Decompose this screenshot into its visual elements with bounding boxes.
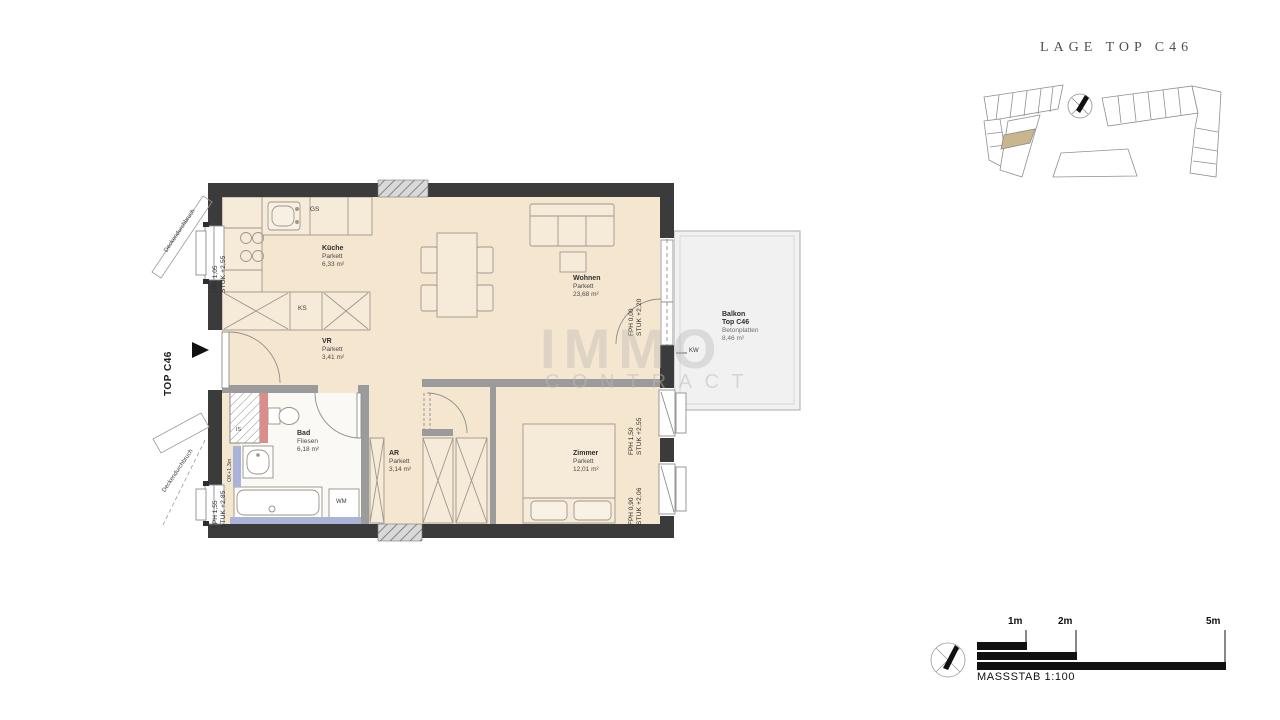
north-compass-icon <box>931 643 965 677</box>
room-label-vr: VR Parkett 3,41 m² <box>322 338 344 362</box>
floor-plan-page: LAGE TOP C46 Küche Parkett 6,33 m² Wohne… <box>0 0 1280 720</box>
floor-plan-drawing <box>0 0 1280 720</box>
label-basin-height: OK+1,3m <box>227 459 233 482</box>
room-label-bad: Bad Fliesen 6,18 m² <box>297 430 319 454</box>
label-washing-machine: WM <box>336 499 347 505</box>
label-dishwasher: GS <box>310 206 319 213</box>
room-label-wohnen: Wohnen Parkett 23,68 m² <box>573 275 600 299</box>
scale-mark-2m: 2m <box>1058 616 1072 627</box>
label-cold-water: KW <box>689 348 699 354</box>
installation-shaft <box>230 386 260 443</box>
room-label-kueche: Küche Parkett 6,33 m² <box>322 245 344 269</box>
site-plan <box>984 85 1221 177</box>
site-compass-icon <box>1068 94 1092 118</box>
room-label-zimmer: Zimmer Parkett 12,01 m² <box>573 450 599 474</box>
bed <box>523 424 615 523</box>
entrance-arrow <box>192 342 209 358</box>
room-label-ar: AR Parkett 3,14 m² <box>389 450 411 474</box>
bathtub <box>234 487 322 518</box>
room-label-balkon: Balkon Top C46 Betonplatten 8,46 m² <box>722 311 759 343</box>
toilet <box>268 408 299 425</box>
window-label-left-top: FPH 1,05 STUK +2,55 <box>212 255 227 293</box>
scale-mark-1m: 1m <box>1008 616 1022 627</box>
coffee-table <box>560 252 586 272</box>
window-label-right-1: FPH 1,50 STUK +2,55 <box>628 417 643 455</box>
sofa <box>530 204 614 246</box>
scale-label: MASSSTAB 1:100 <box>977 671 1075 683</box>
washbasin <box>243 446 273 478</box>
unit-marker: TOP C46 <box>163 351 174 396</box>
window-label-right-2: FPH 0,90 STUK +2,06 <box>628 487 643 525</box>
label-shaft: IS <box>236 427 241 433</box>
scale-mark-5m: 5m <box>1206 616 1220 627</box>
window-label-left-bottom: FPH 1,55 STUK +2,85 <box>212 490 227 528</box>
plumbing-wall-red <box>260 393 268 443</box>
label-fridge: KS <box>298 305 307 312</box>
scale-bar <box>977 630 1226 670</box>
page-title: LAGE TOP C46 <box>1040 40 1193 56</box>
window-label-balcony-door: FPH 0,00 STUK +2,20 <box>628 298 643 336</box>
